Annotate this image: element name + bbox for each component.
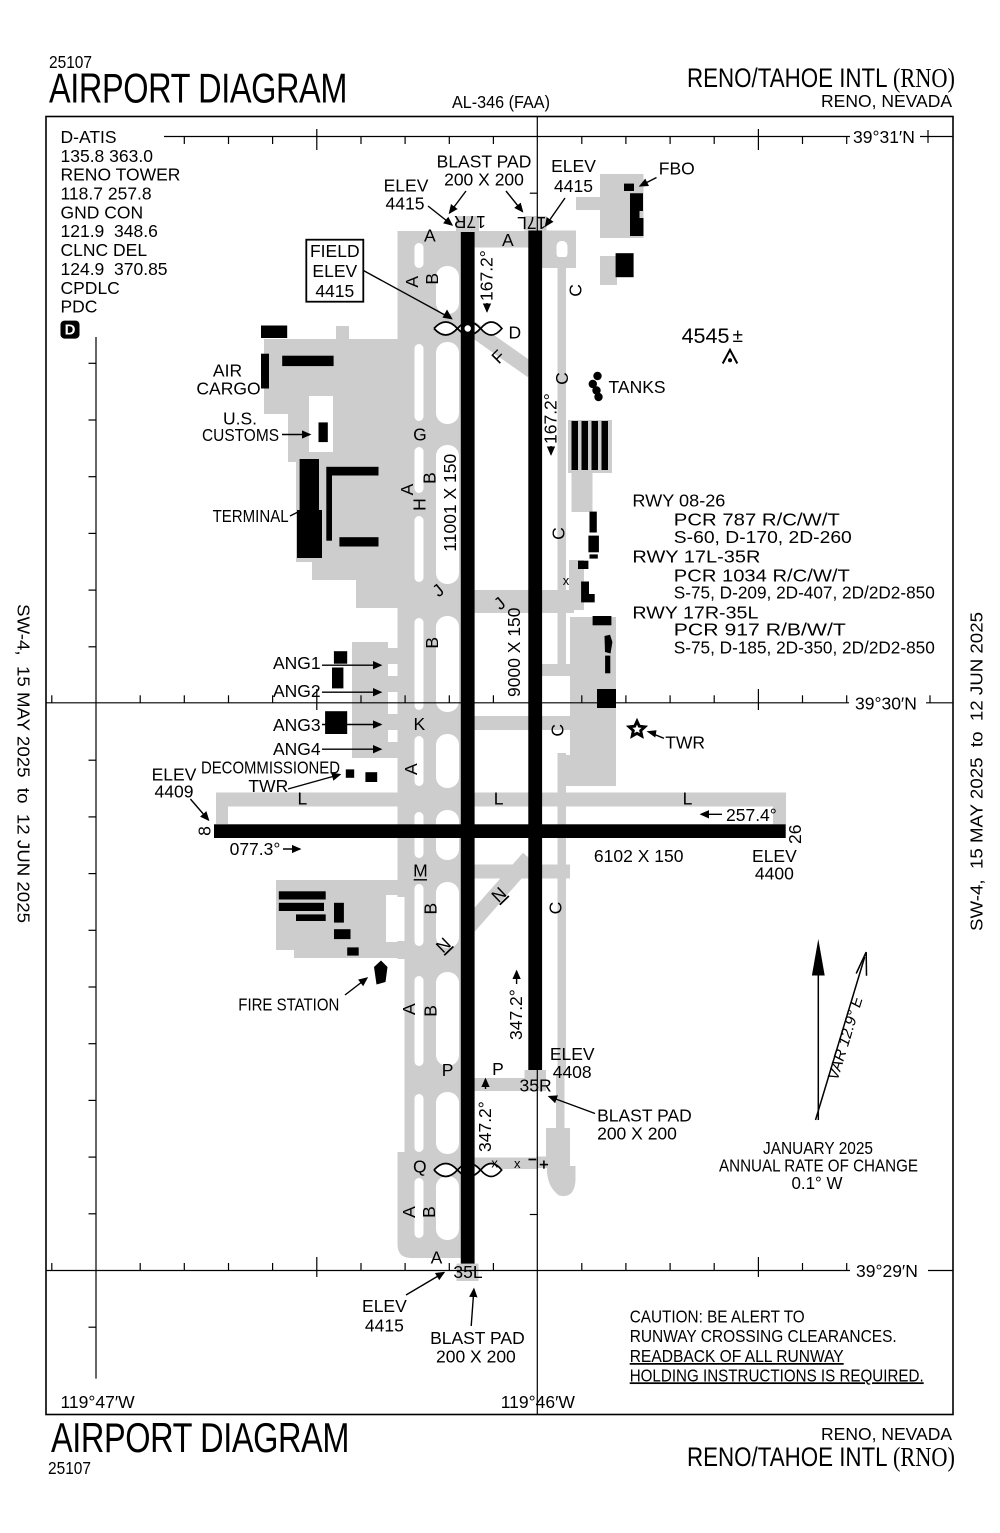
svg-text:CUSTOMS: CUSTOMS — [202, 425, 279, 445]
svg-text:167.2°: 167.2° — [477, 250, 497, 301]
svg-text:AL-346 (FAA): AL-346 (FAA) — [452, 92, 550, 112]
svg-text:TWR: TWR — [665, 733, 705, 753]
svg-text:Q: Q — [413, 1156, 427, 1176]
svg-text:SW-4, 15 MAY 2025 to 12 JUN: SW-4, 15 MAY 2025 to 12 JUN 2025 — [967, 612, 987, 931]
svg-text:35R: 35R — [520, 1076, 552, 1096]
svg-text:A: A — [502, 230, 514, 250]
svg-text:CAUTION: BE ALERT TO: CAUTION: BE ALERT TO — [630, 1306, 805, 1326]
svg-text:A: A — [402, 276, 422, 288]
svg-text:A: A — [399, 1003, 419, 1015]
svg-text:GND CON: GND CON — [61, 202, 144, 222]
svg-text:S-60, D-170, 2D-260: S-60, D-170, 2D-260 — [674, 527, 852, 547]
svg-text:124.9 370.85: 124.9 370.85 — [61, 259, 168, 279]
svg-text:9000 X 150: 9000 X 150 — [504, 607, 524, 697]
svg-text:SW-4, 15 MAY 2025 to 12 JUN: SW-4, 15 MAY 2025 to 12 JUN 2025 — [14, 604, 34, 923]
svg-text:TERMINAL: TERMINAL — [213, 506, 289, 526]
svg-text:B: B — [422, 273, 442, 285]
svg-text:200 X 200: 200 X 200 — [436, 1347, 516, 1367]
svg-text:077.3°: 077.3° — [230, 839, 281, 859]
svg-text:S-75, D-209, 2D-407, 2D/2D2-85: S-75, D-209, 2D-407, 2D/2D2-850 — [674, 582, 935, 602]
svg-text:HOLDING INSTRUCTIONS IS REQUIR: HOLDING INSTRUCTIONS IS REQUIRED. — [630, 1365, 924, 1385]
svg-text:4415: 4415 — [315, 281, 354, 301]
svg-text:DECOMMISSIONED: DECOMMISSIONED — [201, 758, 340, 778]
svg-text:ANG3: ANG3 — [273, 715, 321, 735]
svg-text:READBACK OF ALL RUNWAY: READBACK OF ALL RUNWAY — [630, 1346, 844, 1366]
svg-text:B: B — [419, 1206, 439, 1218]
svg-text:347.2°: 347.2° — [506, 989, 526, 1040]
svg-text:ELEV: ELEV — [312, 261, 357, 281]
svg-text:A: A — [431, 1248, 443, 1268]
svg-text:118.7 257.8: 118.7 257.8 — [61, 184, 152, 204]
svg-text:257.4°: 257.4° — [726, 805, 777, 825]
svg-text:CPDLC: CPDLC — [61, 278, 120, 298]
svg-text:A: A — [401, 763, 421, 775]
svg-text:17L: 17L — [517, 213, 546, 233]
svg-text:A: A — [397, 483, 417, 495]
svg-text:ANG4: ANG4 — [273, 739, 321, 759]
svg-text:4409: 4409 — [155, 781, 194, 801]
svg-text:x: x — [563, 573, 570, 588]
svg-text:D: D — [65, 322, 76, 339]
svg-text:AIRPORT DIAGRAM: AIRPORT DIAGRAM — [49, 65, 347, 112]
svg-text:B: B — [421, 1005, 441, 1017]
svg-text:39°30′N: 39°30′N — [855, 694, 917, 714]
svg-text:4545±: 4545± — [682, 324, 743, 348]
svg-text:C: C — [552, 372, 572, 385]
svg-text:4415: 4415 — [554, 176, 593, 196]
svg-text:H: H — [410, 498, 430, 511]
svg-text:RENO/TAHOE INTL (RNO): RENO/TAHOE INTL (RNO) — [687, 1442, 955, 1472]
svg-text:0.1° W: 0.1° W — [792, 1173, 843, 1193]
svg-text:RWY 08-26: RWY 08-26 — [632, 491, 725, 511]
svg-text:CLNC DEL: CLNC DEL — [61, 240, 148, 260]
svg-text:B: B — [419, 472, 439, 484]
svg-text:K: K — [414, 714, 426, 734]
svg-text:BLAST PAD: BLAST PAD — [437, 152, 532, 172]
svg-text:RENO TOWER: RENO TOWER — [61, 165, 181, 185]
svg-text:TANKS: TANKS — [609, 377, 666, 397]
svg-text:25107: 25107 — [48, 1458, 91, 1478]
svg-text:ELEV: ELEV — [551, 156, 596, 176]
svg-text:4400: 4400 — [755, 864, 794, 884]
svg-text:C: C — [546, 902, 566, 915]
svg-text:M: M — [413, 860, 428, 880]
svg-text:AIRPORT DIAGRAM: AIRPORT DIAGRAM — [51, 1414, 349, 1461]
svg-text:FIRE STATION: FIRE STATION — [238, 995, 339, 1015]
svg-text:RENO, NEVADA: RENO, NEVADA — [821, 1424, 952, 1444]
svg-text:135.8 363.0: 135.8 363.0 — [61, 146, 154, 166]
svg-text:G: G — [413, 425, 427, 445]
svg-text:167.2°: 167.2° — [541, 393, 561, 444]
svg-text:S-75, D-185, 2D-350, 2D/2D2-85: S-75, D-185, 2D-350, 2D/2D2-850 — [674, 637, 935, 657]
svg-text:ELEV: ELEV — [384, 176, 429, 196]
svg-text:RWY 17L-35R: RWY 17L-35R — [632, 546, 760, 566]
svg-text:200 X 200: 200 X 200 — [597, 1123, 677, 1143]
svg-text:RENO/TAHOE INTL (RNO): RENO/TAHOE INTL (RNO) — [687, 63, 955, 93]
svg-text:A: A — [399, 1206, 419, 1218]
svg-text:AIR: AIR — [213, 361, 242, 381]
svg-text:26: 26 — [785, 825, 805, 844]
svg-text:A: A — [424, 226, 436, 246]
svg-text:x: x — [514, 1156, 521, 1171]
svg-text:347.2°: 347.2° — [475, 1101, 495, 1152]
svg-text:11001 X 150: 11001 X 150 — [440, 453, 460, 551]
svg-text:L: L — [494, 789, 504, 809]
svg-text:B: B — [422, 637, 442, 649]
svg-text:PDC: PDC — [61, 297, 98, 317]
svg-text:D-ATIS: D-ATIS — [61, 127, 117, 147]
svg-text:39°31′N: 39°31′N — [853, 127, 915, 147]
svg-text:119°47′W: 119°47′W — [61, 1392, 136, 1412]
svg-text:L: L — [298, 789, 308, 809]
svg-text:CARGO: CARGO — [196, 379, 260, 399]
svg-text:6102 X 150: 6102 X 150 — [594, 846, 684, 866]
svg-text:C: C — [549, 527, 569, 540]
svg-text:4415: 4415 — [386, 194, 425, 214]
svg-text:FIELD: FIELD — [310, 241, 360, 261]
svg-text:FBO: FBO — [659, 159, 695, 179]
svg-text:x: x — [491, 1156, 498, 1171]
svg-text:RUNWAY CROSSING CLEARANCES.: RUNWAY CROSSING CLEARANCES. — [630, 1326, 897, 1346]
svg-text:17R: 17R — [454, 212, 486, 232]
svg-text:D: D — [509, 323, 522, 343]
svg-text:ELEV: ELEV — [362, 1296, 407, 1316]
svg-text:35L: 35L — [453, 1262, 482, 1282]
svg-text:200 X 200: 200 X 200 — [444, 170, 524, 190]
svg-text:119°46′W: 119°46′W — [501, 1392, 576, 1412]
svg-text:B: B — [421, 903, 441, 915]
svg-text:P: P — [492, 1059, 504, 1079]
svg-text:PCR 917 R/B/W/T: PCR 917 R/B/W/T — [674, 619, 846, 639]
svg-text:8: 8 — [194, 826, 214, 836]
svg-text:P: P — [442, 1060, 454, 1080]
svg-text:121.9 348.6: 121.9 348.6 — [61, 221, 158, 241]
svg-text:L: L — [683, 789, 693, 809]
svg-text:39°29′N: 39°29′N — [856, 1261, 918, 1281]
svg-text:4408: 4408 — [553, 1062, 592, 1082]
svg-text:ANG2: ANG2 — [273, 681, 321, 701]
svg-text:RENO, NEVADA: RENO, NEVADA — [821, 91, 952, 111]
svg-text:C: C — [548, 724, 568, 737]
svg-text:C: C — [565, 284, 585, 297]
svg-text:ANG1: ANG1 — [273, 653, 321, 673]
svg-text:4415: 4415 — [365, 1316, 404, 1336]
svg-text:TWR: TWR — [248, 776, 288, 796]
svg-text:BLAST PAD: BLAST PAD — [430, 1328, 525, 1348]
